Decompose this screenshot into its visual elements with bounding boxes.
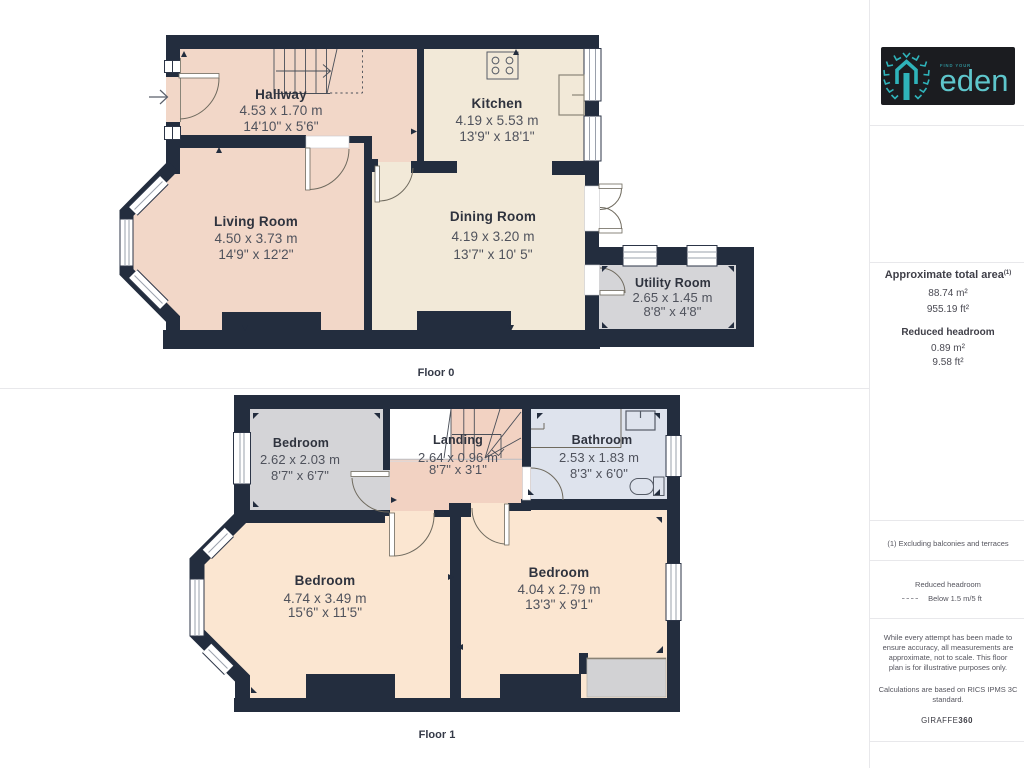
- svg-text:Calculations are based on RICS: Calculations are based on RICS IPMS 3C: [879, 685, 1018, 694]
- svg-text:Reduced headroom: Reduced headroom: [915, 580, 981, 589]
- svg-text:approximate, not to scale. Thi: approximate, not to scale. This floor: [889, 653, 1008, 662]
- svg-text:Floor 0: Floor 0: [418, 367, 455, 379]
- svg-text:Hallway: Hallway: [255, 87, 307, 102]
- svg-text:2.65 x 1.45 m: 2.65 x 1.45 m: [632, 290, 712, 305]
- svg-text:eden: eden: [940, 63, 1009, 98]
- svg-text:13'3" x 9'1": 13'3" x 9'1": [525, 597, 593, 612]
- svg-text:8'7" x 6'7": 8'7" x 6'7": [271, 468, 329, 483]
- svg-text:13'7" x 10' 5": 13'7" x 10' 5": [453, 247, 532, 262]
- svg-text:13'9" x 18'1": 13'9" x 18'1": [459, 129, 534, 144]
- svg-text:Bathroom: Bathroom: [572, 433, 633, 447]
- svg-text:Bedroom: Bedroom: [529, 565, 590, 580]
- svg-text:0.89 m²: 0.89 m²: [931, 343, 966, 354]
- svg-text:4.50 x 3.73 m: 4.50 x 3.73 m: [214, 231, 297, 246]
- svg-text:Bedroom: Bedroom: [273, 436, 329, 450]
- svg-text:Utility Room: Utility Room: [635, 276, 711, 290]
- svg-text:Living Room: Living Room: [214, 214, 298, 229]
- svg-text:9.58 ft²: 9.58 ft²: [932, 357, 964, 368]
- svg-text:Dining Room: Dining Room: [450, 209, 536, 224]
- svg-text:88.74 m²: 88.74 m²: [928, 288, 968, 299]
- svg-text:While every attempt has been m: While every attempt has been made to: [884, 633, 1012, 642]
- svg-text:4.04 x 2.79 m: 4.04 x 2.79 m: [517, 582, 600, 597]
- svg-text:14'10" x 5'6": 14'10" x 5'6": [243, 119, 318, 134]
- svg-text:Bedroom: Bedroom: [295, 573, 356, 588]
- svg-text:4.19 x 5.53 m: 4.19 x 5.53 m: [455, 113, 538, 128]
- svg-text:(1) Excluding balconies and te: (1) Excluding balconies and terraces: [887, 539, 1009, 548]
- svg-text:plan is for illustrative purpo: plan is for illustrative purposes only.: [889, 663, 1007, 672]
- svg-text:ensure accuracy, all measureme: ensure accuracy, all measurements are: [883, 643, 1014, 652]
- svg-text:Floor 1: Floor 1: [419, 729, 456, 741]
- svg-text:GIRAFFE360: GIRAFFE360: [921, 716, 973, 725]
- svg-text:8'8" x 4'8": 8'8" x 4'8": [644, 304, 702, 319]
- svg-text:4.53 x 1.70 m: 4.53 x 1.70 m: [239, 103, 322, 118]
- svg-text:Below 1.5 m/5 ft: Below 1.5 m/5 ft: [928, 594, 983, 603]
- svg-text:14'9" x 12'2": 14'9" x 12'2": [218, 247, 293, 262]
- svg-text:Kitchen: Kitchen: [472, 96, 523, 111]
- svg-text:Reduced headroom: Reduced headroom: [901, 327, 994, 338]
- svg-text:standard.: standard.: [932, 695, 963, 704]
- svg-text:4.19 x 3.20 m: 4.19 x 3.20 m: [451, 229, 534, 244]
- svg-text:2.53 x 1.83 m: 2.53 x 1.83 m: [559, 450, 639, 465]
- svg-text:15'6" x 11'5": 15'6" x 11'5": [288, 605, 362, 620]
- svg-text:Landing: Landing: [433, 433, 483, 447]
- svg-text:Approximate total area(1): Approximate total area(1): [885, 269, 1012, 281]
- svg-text:4.74 x 3.49 m: 4.74 x 3.49 m: [283, 591, 366, 606]
- svg-text:955.19 ft²: 955.19 ft²: [927, 304, 970, 315]
- svg-text:2.62 x 2.03 m: 2.62 x 2.03 m: [260, 452, 340, 467]
- svg-text:8'3" x 6'0": 8'3" x 6'0": [570, 466, 628, 481]
- svg-text:8'7" x 3'1": 8'7" x 3'1": [429, 462, 487, 477]
